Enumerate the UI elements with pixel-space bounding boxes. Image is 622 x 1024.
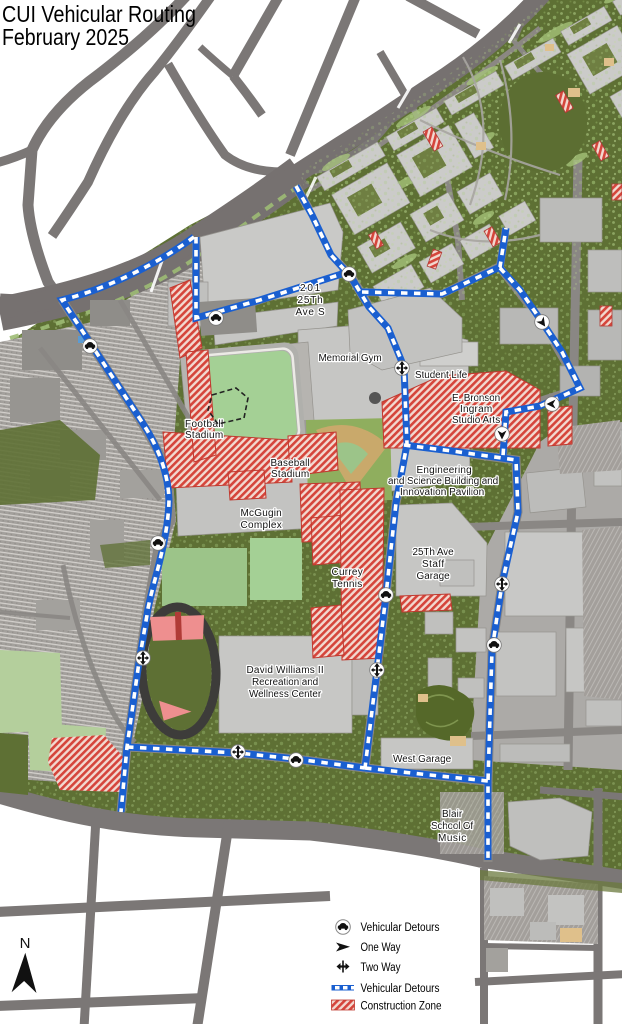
svg-text:N: N xyxy=(20,935,31,952)
svg-text:25Th Ave: 25Th Ave xyxy=(413,547,455,558)
svg-text:Two Way: Two Way xyxy=(361,962,401,974)
svg-text:Music: Music xyxy=(438,833,466,844)
svg-text:Vehicular Detours: Vehicular Detours xyxy=(361,983,440,995)
svg-text:Stadium: Stadium xyxy=(271,469,309,480)
svg-text:Innovation Pavilion: Innovation Pavilion xyxy=(400,487,484,498)
svg-text:Staff: Staff xyxy=(422,559,444,570)
svg-text:201: 201 xyxy=(300,283,321,294)
svg-text:One Way: One Way xyxy=(361,942,401,954)
svg-text:Blair: Blair xyxy=(442,809,463,820)
svg-text:West Garage: West Garage xyxy=(393,754,452,765)
svg-text:Baseball: Baseball xyxy=(271,458,310,469)
svg-text:Currey: Currey xyxy=(332,567,363,578)
svg-text:February 2025: February 2025 xyxy=(2,24,129,50)
svg-text:Garage: Garage xyxy=(417,571,451,582)
svg-text:Complex: Complex xyxy=(241,520,282,531)
svg-text:Vehicular Detours: Vehicular Detours xyxy=(361,922,440,934)
svg-text:School Of: School Of xyxy=(431,821,473,832)
svg-text:25Th: 25Th xyxy=(298,295,323,306)
svg-text:Engineering: Engineering xyxy=(417,465,472,476)
svg-text:E. Bronson: E. Bronson xyxy=(452,393,500,404)
svg-text:Ingram: Ingram xyxy=(460,404,492,415)
svg-text:Stadium: Stadium xyxy=(185,430,223,441)
svg-text:David Williams II: David Williams II xyxy=(247,665,324,676)
svg-text:Memorial Gym: Memorial Gym xyxy=(319,353,382,364)
svg-text:Tennis: Tennis xyxy=(332,579,362,590)
svg-text:Football: Football xyxy=(185,419,223,430)
svg-text:and Science Building and: and Science Building and xyxy=(388,476,498,487)
svg-text:Ave S: Ave S xyxy=(296,307,326,318)
svg-text:Wellness Center: Wellness Center xyxy=(249,689,322,700)
svg-text:Studio Arts: Studio Arts xyxy=(452,415,500,426)
svg-text:McGugin: McGugin xyxy=(241,508,282,519)
svg-text:Student Life: Student Life xyxy=(415,370,468,381)
svg-text:Recreation and: Recreation and xyxy=(252,677,318,688)
svg-text:Construction Zone: Construction Zone xyxy=(361,1001,442,1013)
